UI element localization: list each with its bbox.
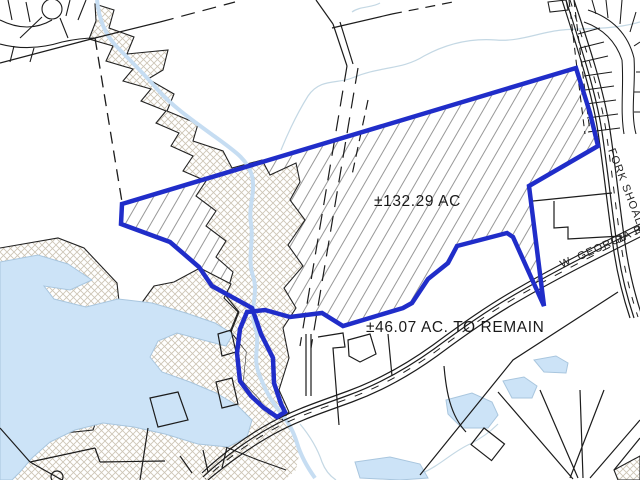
subdivision-topleft — [0, 0, 95, 62]
lot-line — [634, 72, 640, 112]
parcel-line — [533, 193, 612, 201]
parcel-primary-label: ±132.29 AC — [374, 193, 461, 210]
floodplain-crosshatch — [614, 456, 640, 480]
street-line — [622, 58, 636, 134]
floodplain-corner — [614, 456, 640, 480]
parcel-line-dashed — [392, 1, 458, 14]
cul-de-sac — [42, 0, 62, 19]
parcel-line — [318, 333, 345, 425]
pond — [355, 457, 428, 480]
parcel-line — [316, 0, 333, 24]
lot-line — [8, 0, 86, 62]
lot-line — [592, 0, 640, 46]
parcel-line — [0, 38, 95, 63]
parcel-line — [306, 334, 311, 396]
map-canvas: ±132.29 AC ±46.07 AC. TO REMAIN FORK SHO… — [0, 0, 640, 480]
contour-line — [420, 424, 498, 474]
pond — [534, 356, 568, 373]
survey-map: ±132.29 AC ±46.07 AC. TO REMAIN FORK SHO… — [0, 0, 640, 480]
street-line — [0, 20, 52, 27]
building-outline — [348, 334, 376, 362]
drive-line — [333, 22, 353, 66]
contour-line — [300, 424, 336, 480]
parcel-remainder-label: ±46.07 AC. TO REMAIN — [366, 319, 544, 336]
parcel-line — [498, 390, 640, 479]
parcel-line-dashed — [160, 2, 235, 22]
parcel-line — [388, 334, 392, 376]
contour-line — [352, 3, 380, 12]
pond — [503, 377, 537, 398]
